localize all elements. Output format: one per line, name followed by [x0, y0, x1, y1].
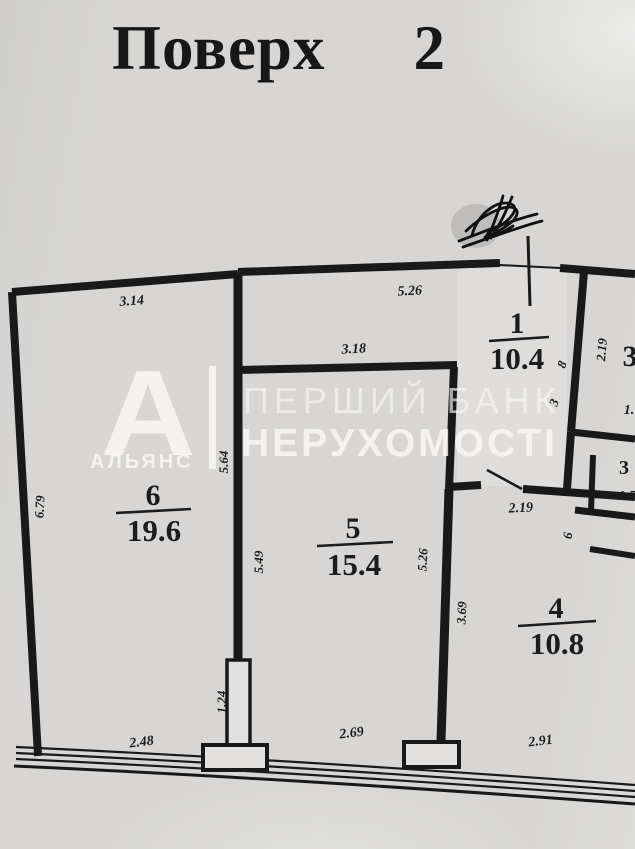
window-wall-line — [16, 759, 635, 797]
walls — [12, 236, 635, 804]
partial-dim: 1. — [624, 403, 635, 418]
title-word: Поверх — [112, 12, 325, 85]
room-area: 19.6 — [127, 513, 181, 548]
partial-dim: 1.5 — [618, 489, 635, 504]
scribble-stroke — [472, 203, 515, 236]
room-number: 6 — [146, 479, 161, 512]
watermark-line2: НЕРУХОМОСТІ — [241, 424, 558, 463]
dim-room5-left: 5.49 — [251, 550, 266, 573]
wall — [560, 268, 635, 274]
dim-room6-left: 6.79 — [31, 495, 47, 519]
pen-scribble — [459, 196, 542, 247]
pier-column — [227, 660, 250, 748]
scribble-stroke — [466, 207, 517, 237]
dim-room4-bottom: 2.91 — [527, 733, 554, 751]
dim-room6-top: 3.14 — [118, 293, 144, 310]
fraction-line — [116, 509, 191, 513]
window-wall-line — [14, 766, 635, 804]
fraction-line — [489, 337, 549, 341]
partial-labels: 8 3 3 1. 3 1.5 6 — [545, 340, 635, 539]
dim-pier-left: 1.24 — [214, 690, 229, 713]
room-label-1: 1 10.4 — [489, 307, 549, 376]
wall — [590, 549, 635, 556]
partial-room-number: 3 — [619, 457, 629, 479]
room-area: 10.8 — [530, 626, 584, 661]
door-swing — [487, 470, 522, 489]
dim-room5-top: 3.18 — [340, 341, 366, 357]
wall — [238, 365, 457, 370]
smudge — [451, 204, 501, 248]
fraction-line — [518, 621, 596, 626]
partial-dim: 8 — [554, 358, 570, 370]
scribble-stroke — [487, 196, 503, 240]
dim-hall-top: 5.26 — [397, 283, 422, 299]
scribble-stroke — [459, 214, 537, 241]
dim-hall-right: 2.19 — [593, 337, 610, 362]
room-area: 15.4 — [327, 547, 381, 582]
wall — [591, 455, 593, 512]
room-area: 10.4 — [490, 341, 544, 376]
dim-room4-left: 3.69 — [453, 601, 469, 626]
wall — [12, 292, 38, 756]
wall — [571, 432, 635, 439]
wall — [12, 274, 238, 292]
dim-room4-top: 2.19 — [507, 500, 533, 516]
scribble-stroke — [491, 197, 512, 238]
room-number: 4 — [549, 592, 564, 625]
pier-footing — [404, 742, 459, 767]
dim-room6-bottom: 2.48 — [128, 734, 155, 752]
room-label-6: 6 19.6 — [116, 479, 191, 548]
entrance-door-leaf — [528, 236, 530, 306]
title-number: 2 — [413, 12, 446, 85]
fraction-line — [317, 542, 393, 546]
watermark-divider — [209, 366, 216, 469]
room-number: 1 — [510, 307, 525, 340]
wall — [523, 489, 635, 497]
wall — [567, 432, 571, 489]
room-number: 5 — [346, 512, 361, 545]
page-title: Поверх 2 — [0, 12, 635, 85]
room-label-4: 4 10.8 — [518, 592, 596, 661]
wall — [238, 263, 500, 272]
partial-room-number: 3 — [623, 340, 635, 373]
watermark-logo-caption: АЛЬЯНС — [90, 452, 194, 472]
floor-plan-scan: Поверх 2 — [0, 0, 635, 849]
piers — [203, 660, 459, 770]
scribble-stroke — [463, 221, 542, 247]
window-wall-line — [16, 753, 635, 791]
pier-footing — [203, 745, 267, 770]
wall — [575, 510, 635, 517]
wall — [571, 271, 584, 432]
wall — [441, 489, 449, 741]
dim-room6-right: 5.64 — [216, 450, 231, 473]
room-label-5: 5 15.4 — [317, 512, 393, 582]
dim-room5-bottom: 2.69 — [338, 725, 365, 743]
dim-room5-right: 5.26 — [414, 548, 430, 572]
partial-dim: 6 — [560, 531, 576, 539]
wall — [449, 485, 481, 487]
door-threshold — [500, 265, 560, 268]
window-wall-line — [16, 747, 635, 785]
watermark-line1: ПЕРШИЙ БАНК — [243, 383, 560, 419]
